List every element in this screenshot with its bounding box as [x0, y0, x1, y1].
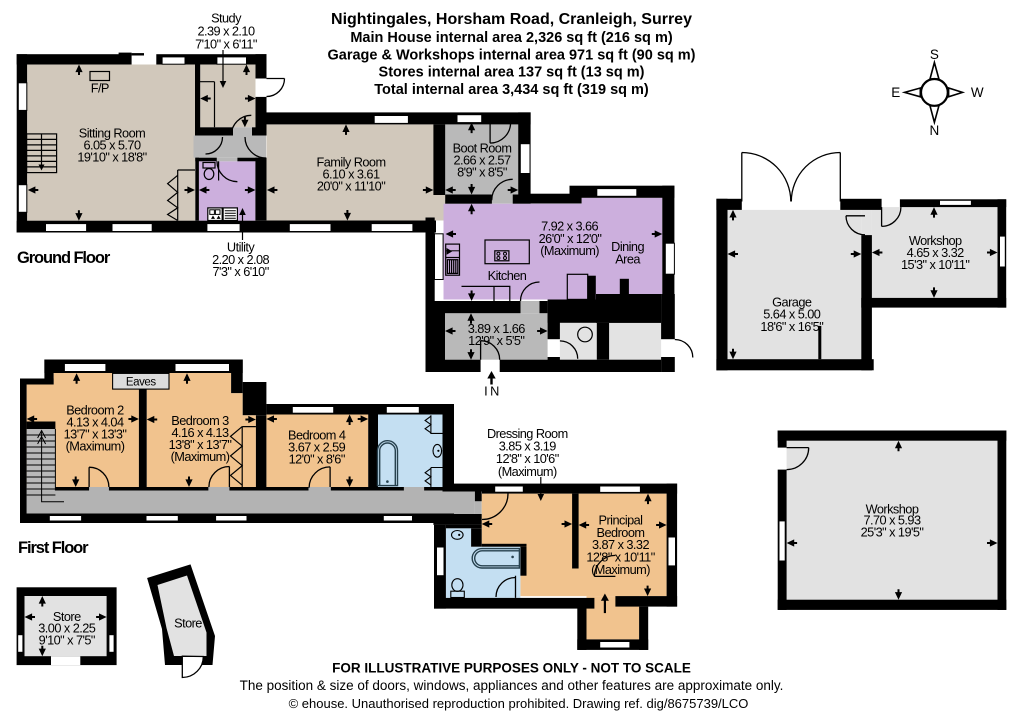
svg-text:E: E	[891, 85, 900, 100]
svg-text:15'3" x 10'11": 15'3" x 10'11"	[901, 257, 969, 272]
svg-text:The position & size of doors,: The position & size of doors, windows, a…	[240, 678, 784, 693]
svg-text:S: S	[930, 47, 939, 62]
svg-text:19'10" x 18'8": 19'10" x 18'8"	[77, 150, 146, 165]
svg-text:Ground Floor: Ground Floor	[17, 249, 111, 267]
svg-text:N: N	[930, 123, 940, 138]
svg-text:(Maximum): (Maximum)	[498, 464, 557, 479]
svg-text:25'3" x 19'5": 25'3" x 19'5"	[861, 524, 924, 539]
svg-text:Eaves: Eaves	[126, 376, 157, 388]
svg-text:12'0" x 8'6": 12'0" x 8'6"	[289, 452, 345, 467]
svg-text:Stores internal area 137 sq ft: Stores internal area 137 sq ft (13 sq m)	[379, 65, 645, 81]
svg-text:9'10" x 7'5": 9'10" x 7'5"	[39, 633, 95, 648]
svg-text:20'0" x 11'10": 20'0" x 11'10"	[317, 179, 385, 194]
svg-text:Total internal area 3,434 sq f: Total internal area 3,434 sq ft (319 sq …	[374, 82, 649, 98]
svg-text:(Maximum): (Maximum)	[591, 562, 650, 577]
svg-text:12'9" x 5'5": 12'9" x 5'5"	[468, 333, 524, 348]
svg-text:(Maximum): (Maximum)	[171, 449, 230, 464]
svg-text:Area: Area	[615, 251, 641, 266]
svg-text:Nightingales, Horsham Road, Cr: Nightingales, Horsham Road, Cranleigh, S…	[331, 11, 692, 28]
svg-text:7'10" x 6'11": 7'10" x 6'11"	[195, 37, 257, 52]
svg-text:FOR ILLUSTRATIVE PURPOSES ONLY: FOR ILLUSTRATIVE PURPOSES ONLY - NOT TO …	[332, 661, 691, 676]
svg-text:18'6" x 16'5": 18'6" x 16'5"	[760, 319, 823, 334]
svg-text:Kitchen: Kitchen	[488, 268, 527, 283]
svg-text:First Floor: First Floor	[18, 539, 89, 557]
svg-text:Main House internal area 2,326: Main House internal area 2,326 sq ft (21…	[350, 30, 673, 46]
svg-text:I N: I N	[484, 384, 499, 399]
svg-text:Store: Store	[174, 616, 202, 631]
svg-text:F/P: F/P	[91, 81, 109, 96]
svg-text:W: W	[971, 85, 984, 100]
svg-text:(Maximum): (Maximum)	[66, 439, 125, 454]
svg-text:Garage & Workshops internal ar: Garage & Workshops internal area 971 sq …	[328, 48, 696, 64]
svg-text:(Maximum): (Maximum)	[540, 243, 599, 258]
svg-text:7'3" x 6'10": 7'3" x 6'10"	[212, 264, 268, 279]
svg-text:8'9" x 8'5": 8'9" x 8'5"	[457, 165, 507, 180]
svg-text:© ehouse. Unauthorised reprodu: © ehouse. Unauthorised reproduction proh…	[289, 696, 749, 711]
